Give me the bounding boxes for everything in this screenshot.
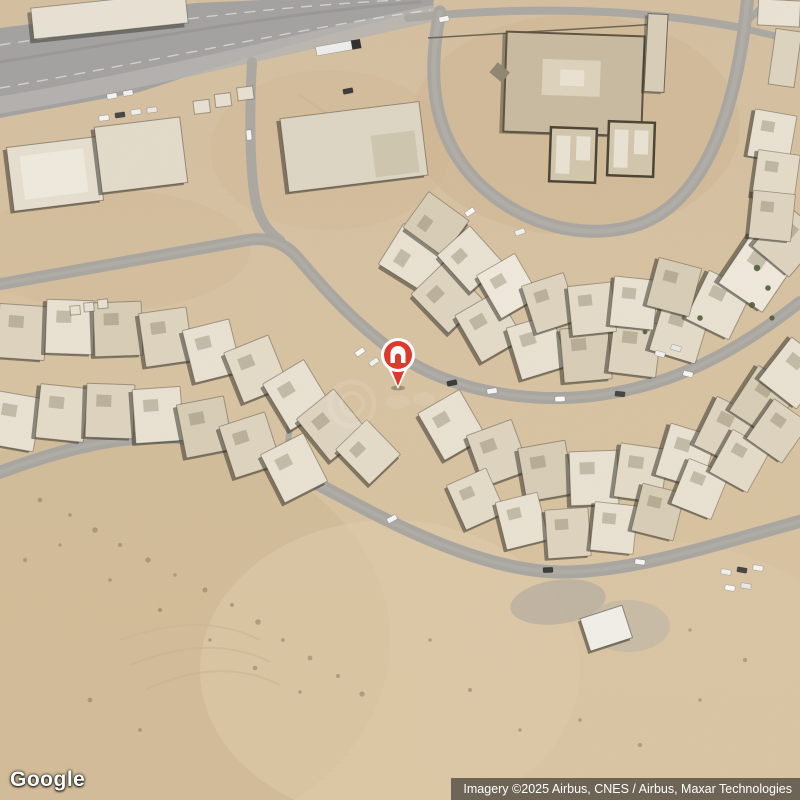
google-logo[interactable]: Google: [10, 768, 85, 792]
satellite-map-canvas[interactable]: Google Imagery ©2025 Airbus, CNES / Airb…: [0, 0, 800, 800]
home-arch-door: [395, 354, 401, 364]
satellite-imagery: [0, 0, 800, 800]
location-marker[interactable]: [376, 331, 420, 391]
image-grain: [0, 0, 800, 800]
imagery-attribution: Imagery ©2025 Airbus, CNES / Airbus, Max…: [451, 778, 800, 800]
